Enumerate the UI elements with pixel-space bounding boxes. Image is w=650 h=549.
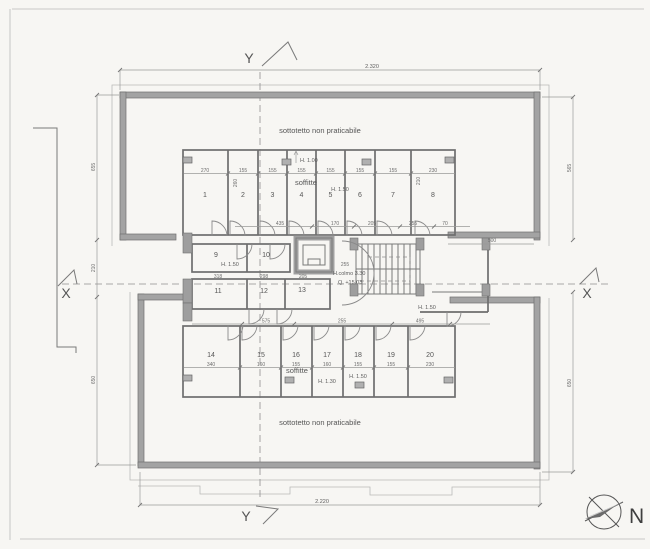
- height-label-h150-top: H. 1.50: [331, 187, 349, 193]
- dim-misc-210: 210: [416, 177, 422, 186]
- dim-room-8: 230: [429, 168, 438, 174]
- north-label: N: [629, 505, 644, 528]
- ridge-height-label: H.colmo 3.30: [333, 271, 365, 277]
- room-label-20: 20: [426, 352, 434, 359]
- dim-right-upper: 565: [567, 164, 573, 173]
- room-label-17: 17: [323, 352, 331, 359]
- room-label-13: 13: [298, 287, 306, 294]
- height-label-h150-right: H. 1.50: [418, 305, 436, 311]
- dim-room-16: 155: [292, 362, 301, 368]
- height-label-h150-room9: H. 1.50: [221, 262, 239, 268]
- room-label-12: 12: [260, 288, 268, 295]
- height-label-h100: H. 1.00: [300, 158, 318, 164]
- dim-corridor-top-3: 255: [409, 221, 418, 227]
- height-label-h130: H. 1.30: [318, 379, 336, 385]
- dim-left-upper: 655: [91, 163, 97, 172]
- dim-room-18: 155: [354, 362, 363, 368]
- room-label-10: 10: [262, 252, 270, 259]
- dim-room-3: 155: [268, 168, 277, 174]
- site-boundary: [33, 128, 76, 353]
- room-label-6: 6: [358, 192, 362, 199]
- dim-left-middle: 210: [91, 264, 97, 273]
- room-label-16: 16: [292, 352, 300, 359]
- dim-misc-260: 260: [233, 179, 239, 188]
- room-label-8: 8: [431, 192, 435, 199]
- y-axis-label-top: Y: [244, 50, 254, 66]
- soffitte-label-top: soffitte: [295, 178, 317, 187]
- elevator: [296, 238, 332, 272]
- dim-room-5: 155: [326, 168, 335, 174]
- dim-room-7: 155: [389, 168, 398, 174]
- x-axis-label-right: X: [582, 285, 592, 301]
- dim-corridor-top-5: 500: [488, 238, 497, 244]
- dim-top-width: 2.320: [365, 64, 379, 70]
- dim-room-6: 155: [356, 168, 365, 174]
- compass: [585, 495, 623, 529]
- floor-plan-drawing: Y Y X X N sottotetto non praticabile sot…: [0, 0, 650, 549]
- x-axis-label-left: X: [61, 285, 71, 301]
- wall-pillars: [183, 233, 490, 321]
- dim-corridor-top-0: 435: [276, 221, 285, 227]
- room-label-4: 4: [300, 192, 304, 199]
- room-label-3: 3: [271, 192, 275, 199]
- dim-left-lower: 650: [91, 376, 97, 385]
- room-label-18: 18: [354, 352, 362, 359]
- room-label-7: 7: [391, 192, 395, 199]
- dim-corridor-bottom-0: 575: [262, 319, 271, 325]
- y-axis-label-bottom: Y: [241, 508, 251, 524]
- room-label-2: 2: [241, 192, 245, 199]
- room-label-19: 19: [387, 352, 395, 359]
- room-label-9: 9: [214, 252, 218, 259]
- dim-room-19: 155: [387, 362, 396, 368]
- dim-corridor-bottom-2: 495: [416, 319, 425, 325]
- room-label-11: 11: [214, 288, 221, 295]
- room-label-14: 14: [207, 352, 215, 359]
- rooms-bottom-band: [183, 326, 455, 397]
- dim-right-lower: 650: [567, 379, 573, 388]
- height-arrow: [294, 151, 298, 163]
- dim-room-4: 155: [297, 168, 306, 174]
- dim-room-14: 340: [207, 362, 216, 368]
- dim-room-1: 270: [201, 168, 210, 174]
- dim-corridor-top-2: 205: [368, 221, 377, 227]
- dim-mid-0: 318: [214, 274, 223, 280]
- dim-room-15: 160: [257, 362, 266, 368]
- dim-corridor-top-4: 70: [442, 221, 448, 227]
- dim-corridor-bottom-1: 255: [338, 319, 347, 325]
- height-label-h150-room18: H. 1.50: [349, 374, 367, 380]
- attic-note-bottom: sottotetto non praticabile: [279, 418, 361, 427]
- dim-mid-3: 255: [341, 262, 350, 268]
- elevation-label: Q. +15.03: [338, 280, 362, 286]
- dim-room-17: 160: [323, 362, 332, 368]
- dim-room-2: 155: [239, 168, 248, 174]
- dim-mid-1: 298: [260, 274, 269, 280]
- room-label-15: 15: [257, 352, 265, 359]
- room-label-5: 5: [329, 192, 333, 199]
- room-label-1: 1: [203, 192, 207, 199]
- dim-mid-2: 205: [299, 274, 308, 280]
- floor-plan-sheet: Y Y X X N sottotetto non praticabile sot…: [0, 0, 650, 549]
- dim-bottom-width: 2.220: [315, 499, 329, 505]
- dim-room-20: 230: [426, 362, 435, 368]
- attic-note-top: sottotetto non praticabile: [279, 126, 361, 135]
- dim-corridor-top-1: 170: [331, 221, 340, 227]
